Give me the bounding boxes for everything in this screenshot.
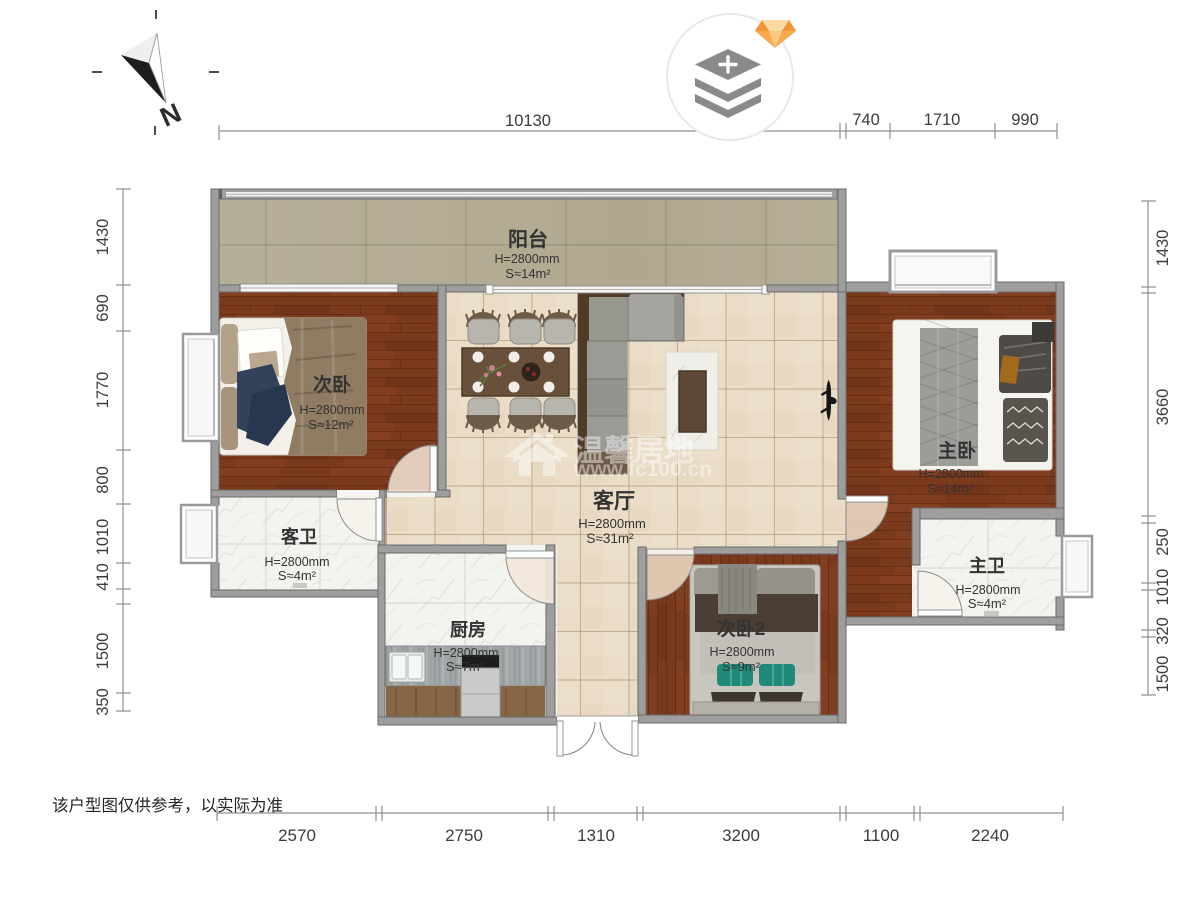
svg-text:H=2800mm: H=2800mm — [956, 583, 1021, 597]
svg-text:S≈14m²: S≈14m² — [927, 481, 973, 496]
svg-text:H=2800mm: H=2800mm — [265, 555, 330, 569]
svg-text:H=2800mm: H=2800mm — [495, 252, 560, 266]
svg-text:H=2800mm: H=2800mm — [434, 646, 499, 660]
svg-text:S≈4m²: S≈4m² — [278, 568, 317, 583]
svg-text:厨房: 厨房 — [450, 619, 486, 640]
svg-text:1500: 1500 — [1154, 656, 1172, 693]
svg-text:主卫: 主卫 — [969, 555, 1005, 576]
svg-text:410: 410 — [94, 563, 112, 591]
svg-text:740: 740 — [852, 111, 880, 129]
svg-text:该户型图仅供参考，以实际为准: 该户型图仅供参考，以实际为准 — [52, 796, 283, 815]
svg-text:次卧: 次卧 — [313, 373, 351, 396]
svg-text:1710: 1710 — [924, 111, 961, 129]
svg-text:H=2800mm: H=2800mm — [300, 403, 365, 417]
svg-text:S≈12m²: S≈12m² — [308, 417, 354, 432]
svg-text:H=2800mm: H=2800mm — [578, 516, 646, 531]
svg-text:H=2800mm: H=2800mm — [919, 467, 984, 481]
svg-text:1430: 1430 — [94, 219, 112, 256]
svg-text:320: 320 — [1154, 617, 1172, 645]
svg-text:250: 250 — [1154, 528, 1172, 556]
svg-text:350: 350 — [94, 688, 112, 716]
svg-text:1310: 1310 — [577, 826, 615, 845]
svg-text:800: 800 — [94, 466, 112, 494]
svg-text:H=2800mm: H=2800mm — [710, 645, 775, 659]
svg-text:www.fc100.cn: www.fc100.cn — [573, 458, 712, 481]
svg-text:1500: 1500 — [94, 633, 112, 670]
svg-text:2750: 2750 — [445, 826, 483, 845]
svg-text:S≈4m²: S≈4m² — [968, 596, 1007, 611]
svg-text:客卫: 客卫 — [281, 526, 317, 547]
svg-text:3660: 3660 — [1154, 389, 1172, 426]
svg-text:1100: 1100 — [863, 826, 900, 845]
svg-text:990: 990 — [1011, 111, 1039, 129]
svg-text:1010: 1010 — [1154, 569, 1172, 606]
svg-text:690: 690 — [94, 294, 112, 322]
svg-text:S≈31m²: S≈31m² — [586, 531, 634, 546]
svg-text:2570: 2570 — [278, 826, 316, 845]
svg-text:主卧: 主卧 — [938, 440, 976, 462]
svg-text:次卧2: 次卧2 — [717, 617, 766, 640]
svg-text:S≈9m²: S≈9m² — [722, 659, 761, 674]
svg-text:1010: 1010 — [94, 519, 112, 556]
svg-text:1430: 1430 — [1154, 230, 1172, 267]
svg-text:S≈7m²: S≈7m² — [446, 659, 485, 674]
svg-text:阳台: 阳台 — [508, 227, 548, 251]
svg-text:客厅: 客厅 — [593, 489, 635, 513]
svg-text:1770: 1770 — [94, 372, 112, 409]
svg-text:3200: 3200 — [722, 826, 760, 845]
svg-text:10130: 10130 — [505, 112, 551, 130]
svg-text:2240: 2240 — [971, 826, 1009, 845]
svg-text:S≈14m²: S≈14m² — [505, 266, 551, 281]
